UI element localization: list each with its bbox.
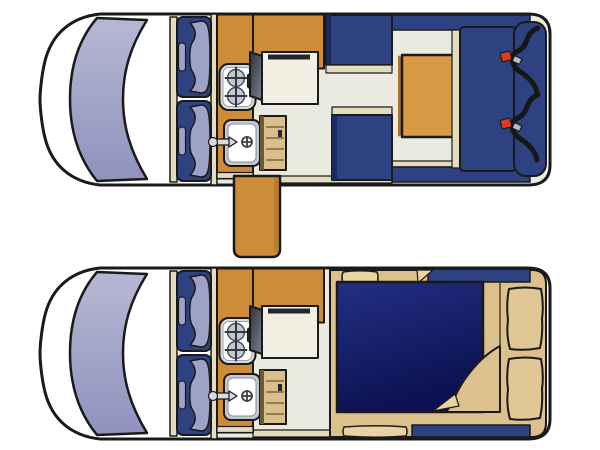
floor-plan-day (40, 14, 550, 257)
lounge-seat-bottom-lip (332, 107, 392, 115)
seatbelt-buckle-red (500, 51, 512, 62)
swingout-edge-shadow (274, 178, 279, 252)
folded-cushion-bottom (343, 426, 407, 438)
floorplan-svg (0, 0, 600, 450)
night-wall-strip-bottom (412, 425, 530, 437)
pillow-top (507, 288, 543, 350)
lounge-seat-top (326, 15, 392, 73)
lounge-seat-bottom-shadow (332, 115, 337, 180)
rear-bench (452, 22, 546, 176)
seatbelt-buckle-red (500, 118, 512, 129)
kitchen-swingout-counter (234, 176, 280, 257)
pillow-bottom (507, 358, 543, 420)
night-wall-strip-top (428, 269, 530, 282)
rear-bench-cushion (460, 27, 516, 171)
lounge-seat-bottom (332, 107, 392, 180)
floor-plan-night (40, 268, 550, 439)
lounge-seat-top-shadow (326, 15, 331, 65)
campervan-floorplan-figure (0, 0, 600, 450)
lounge-seat-top-lip (326, 65, 392, 73)
